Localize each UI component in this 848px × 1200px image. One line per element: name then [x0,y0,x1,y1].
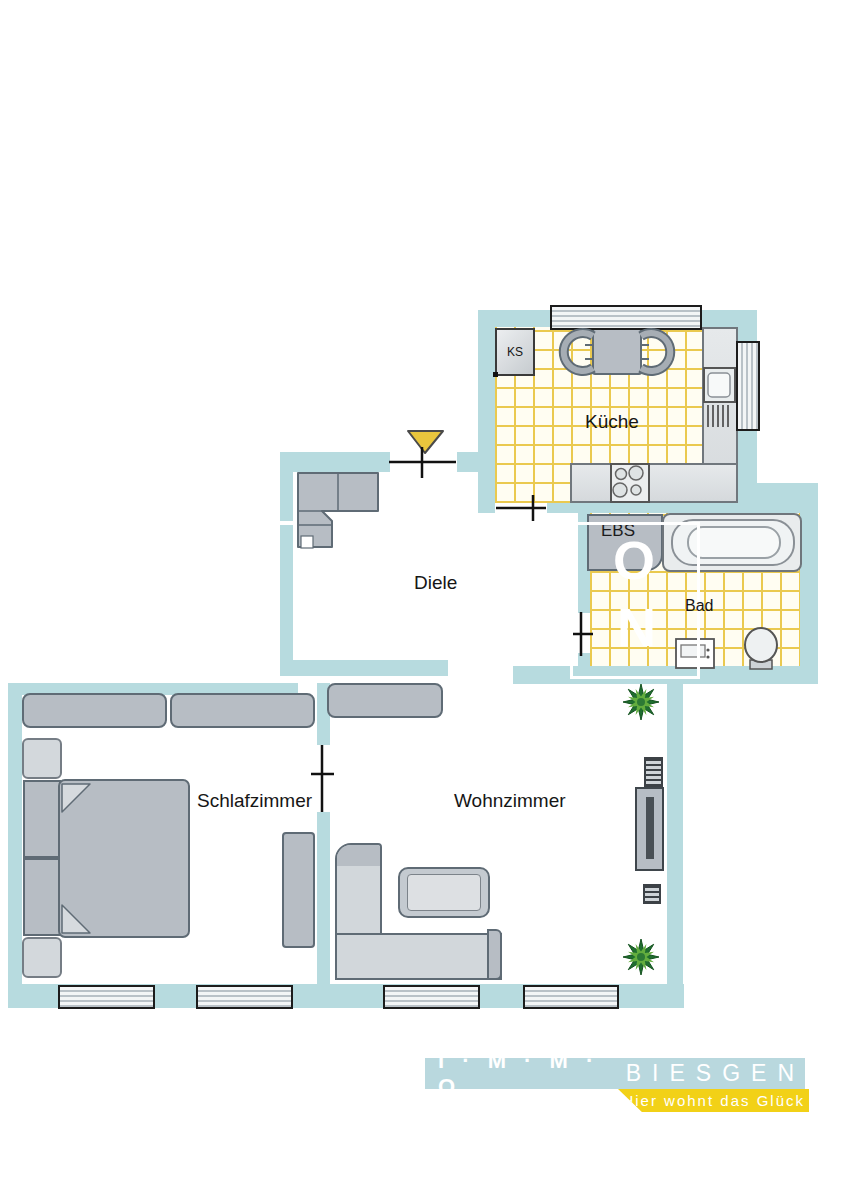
kitchen-table [592,328,642,375]
wall-bath-right [800,503,818,684]
bedroom-wardrobe-2 [170,693,315,728]
bedroom-wardrobe-1 [22,693,167,728]
bedroom-door-line [311,745,334,812]
fridge-hinge-dot [493,372,498,377]
logo-brand-bold: I · M · M · O [438,1048,608,1100]
wall-kitchen-left [478,327,495,513]
wall-hall-left [280,472,293,676]
coffee-table-top [407,874,481,911]
bed-mattress [58,779,190,938]
sofa-horizontal-arm [335,933,502,980]
room-label-kitchen: Küche [585,411,639,433]
wall-bath-top-right [757,483,818,503]
bedroom-window-2 [196,985,293,1009]
room-label-living: Wohnzimmer [454,790,566,812]
watermark-letter-o: O [613,533,655,587]
plant-icon [623,939,660,976]
tv-speaker-top [644,757,663,787]
fridge: KS [495,328,535,376]
wall-hall-top-left [280,452,390,472]
entrance-arrow-icon [408,431,443,453]
kitchen-window-top [550,305,702,330]
wall-divider-lower [317,812,330,985]
hall-wardrobe [298,473,378,548]
logo-brand-light: BIESGEN [626,1060,805,1087]
nightstand-top [22,738,62,779]
logo-tagline-banner: Hier wohnt das Glück [618,1089,809,1112]
room-label-bedroom: Schlafzimmer [197,790,312,812]
tv-screen [646,797,654,859]
room-label-hall: Diele [414,572,457,594]
bed-side-panel-2 [23,858,61,936]
living-sideboard [327,683,443,718]
logo-banner: I · M · M · O BIESGEN [425,1058,805,1089]
wall-section-right [667,684,683,1008]
logo-tagline: Hier wohnt das Glück [622,1092,805,1109]
tv-speaker-bottom [643,884,661,904]
bedroom-window-1 [58,985,155,1009]
nightstand-bottom [22,937,62,978]
wall-hall-bottom [280,660,448,676]
entrance-door-line [389,447,456,478]
plant-icon [623,684,660,721]
kitchen-counter-bottom [570,463,738,503]
room-label-bath: Bad [685,597,713,615]
sofa-top-cushion [337,845,380,866]
floor-plan: KS EBS [0,0,848,1200]
wall-kitchen-bath-bottom [547,503,818,513]
wall-kitchen-bottom-left-stub [478,503,495,513]
bedroom-dresser [282,832,315,948]
kitchen-window-right [736,341,760,431]
watermark-letter-n: N [617,600,656,654]
sofa-end-cushion [487,929,502,980]
bed-side-panel-1 [23,780,61,858]
living-window-1 [383,985,480,1009]
fridge-label: KS [507,345,523,359]
bathtub-basin [687,526,781,559]
wall-seam [279,521,294,525]
living-window-2 [523,985,619,1009]
wall-section-left [8,683,22,1008]
wall-hall-top-right [457,452,495,472]
